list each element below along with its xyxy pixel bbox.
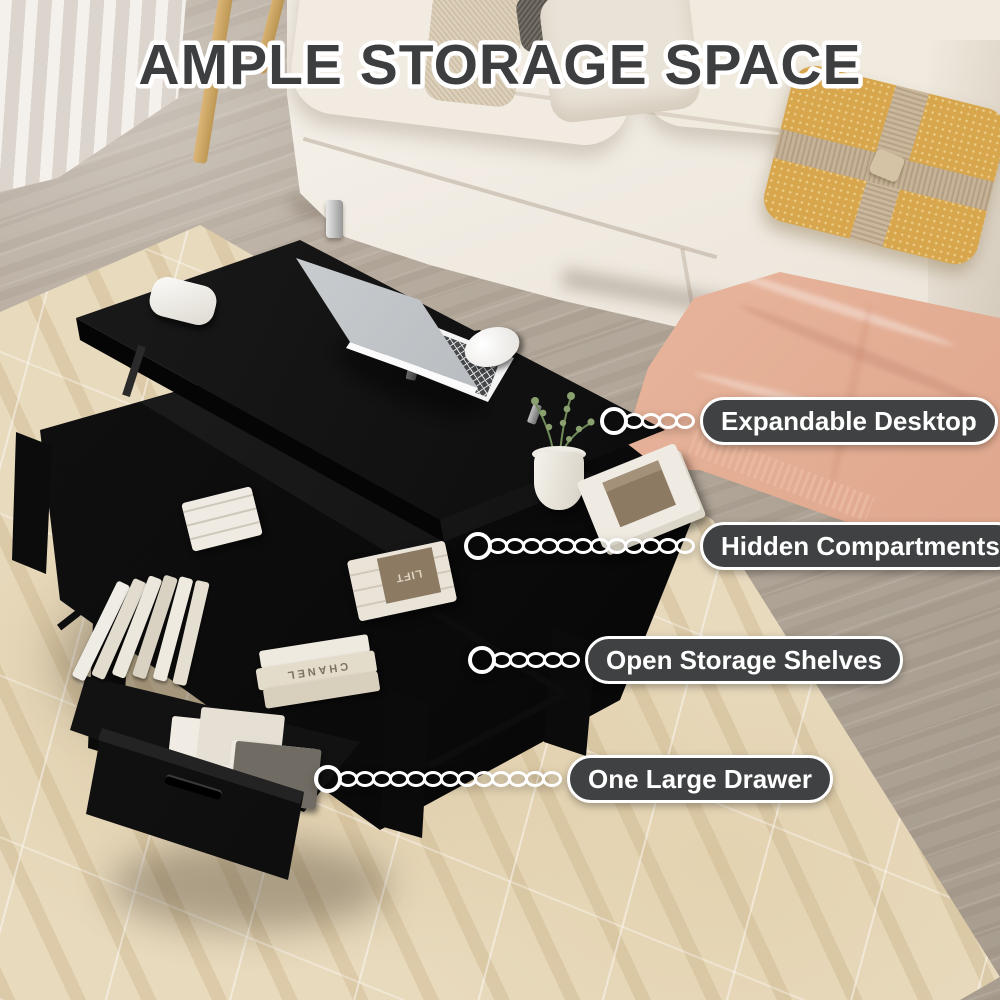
callout-open-storage-shelves: Open Storage Shelves xyxy=(468,637,903,683)
magazine-cover: LIFT xyxy=(377,547,441,604)
callout-pill: Hidden Compartments xyxy=(700,522,1000,570)
shelf-books xyxy=(90,572,220,702)
chain-connector xyxy=(627,413,695,429)
callout-expandable-desktop: Expandable Desktop xyxy=(600,398,998,444)
callout-pill: One Large Drawer xyxy=(567,755,833,803)
magazine-cover xyxy=(602,460,676,527)
magazine-cover-label: LIFT xyxy=(394,567,423,584)
page-title: AMPLE STORAGE SPACE xyxy=(138,33,861,97)
chain-link-icon xyxy=(542,771,562,787)
callout-pill: Expandable Desktop xyxy=(700,397,998,445)
title-banner: AMPLE STORAGE SPACE xyxy=(0,0,1000,112)
sofa-seam xyxy=(303,137,717,259)
chain-connector xyxy=(495,652,580,668)
sofa-metal-leg xyxy=(326,200,343,238)
callout-pill: Open Storage Shelves xyxy=(585,636,903,684)
chain-connector xyxy=(341,771,562,787)
callout-hidden-compartments: Hidden Compartments xyxy=(464,523,1000,569)
plant-pot xyxy=(534,452,584,510)
chain-link-icon xyxy=(675,413,695,429)
callout-one-large-drawer: One Large Drawer xyxy=(314,756,833,802)
chain-link-icon xyxy=(560,652,580,668)
product-marketing-image: CHANEL LIFT xyxy=(0,0,1000,1000)
chain-connector xyxy=(491,538,695,554)
chain-link-icon xyxy=(675,538,695,554)
